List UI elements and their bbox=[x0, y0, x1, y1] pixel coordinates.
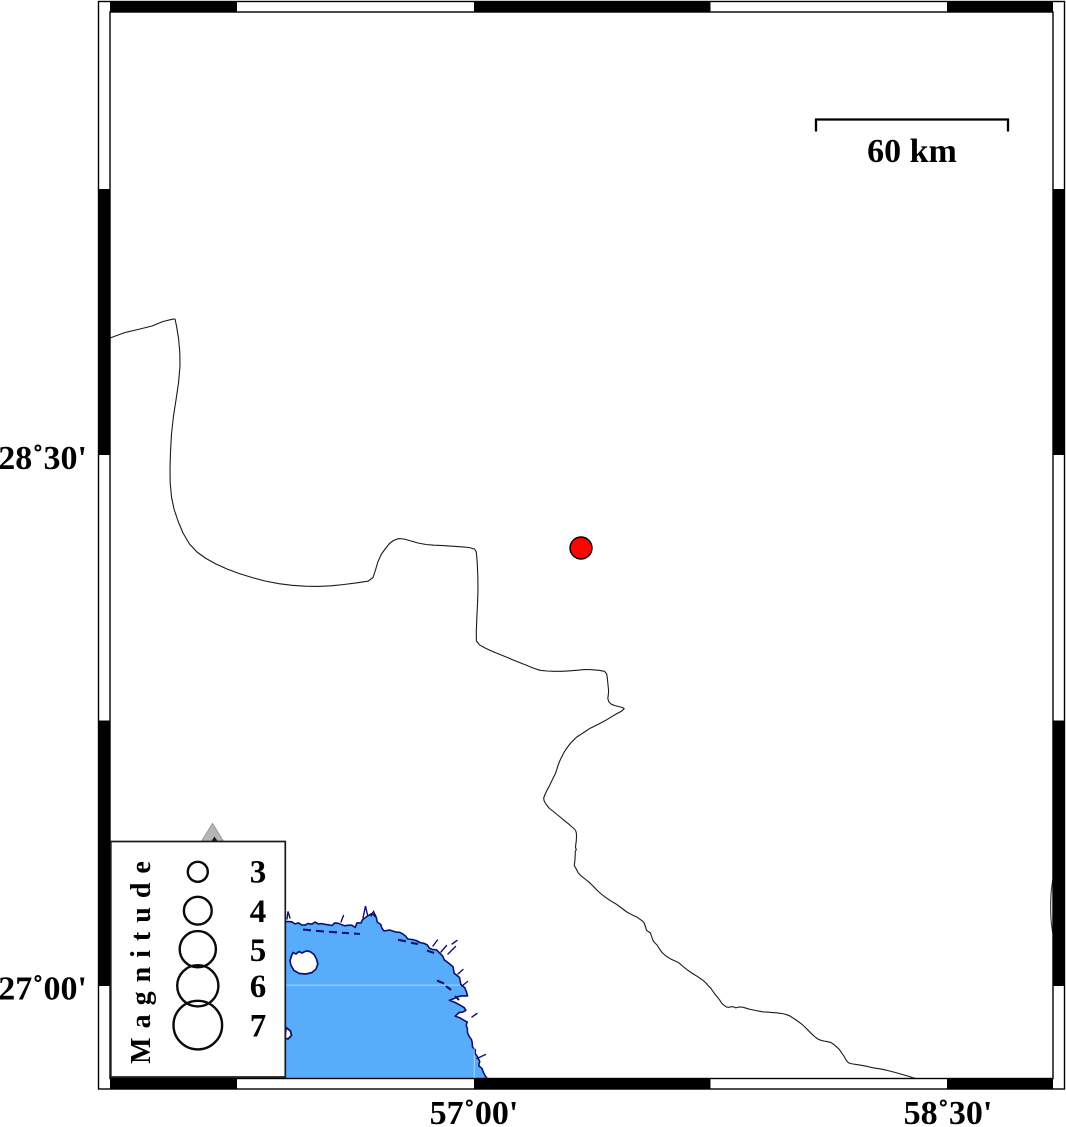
svg-text:28˚30': 28˚30' bbox=[0, 440, 87, 477]
svg-text:5: 5 bbox=[250, 933, 267, 969]
svg-text:27˚00': 27˚00' bbox=[0, 971, 87, 1008]
svg-text:6: 6 bbox=[250, 969, 267, 1005]
svg-text:60 km: 60 km bbox=[867, 133, 957, 170]
svg-text:57˚00': 57˚00' bbox=[430, 1095, 519, 1127]
svg-text:7: 7 bbox=[250, 1009, 267, 1045]
svg-text:Magnitude: Magnitude bbox=[126, 852, 157, 1064]
svg-text:4: 4 bbox=[250, 894, 267, 930]
svg-text:58˚30': 58˚30' bbox=[904, 1095, 993, 1127]
svg-text:3: 3 bbox=[250, 854, 267, 890]
